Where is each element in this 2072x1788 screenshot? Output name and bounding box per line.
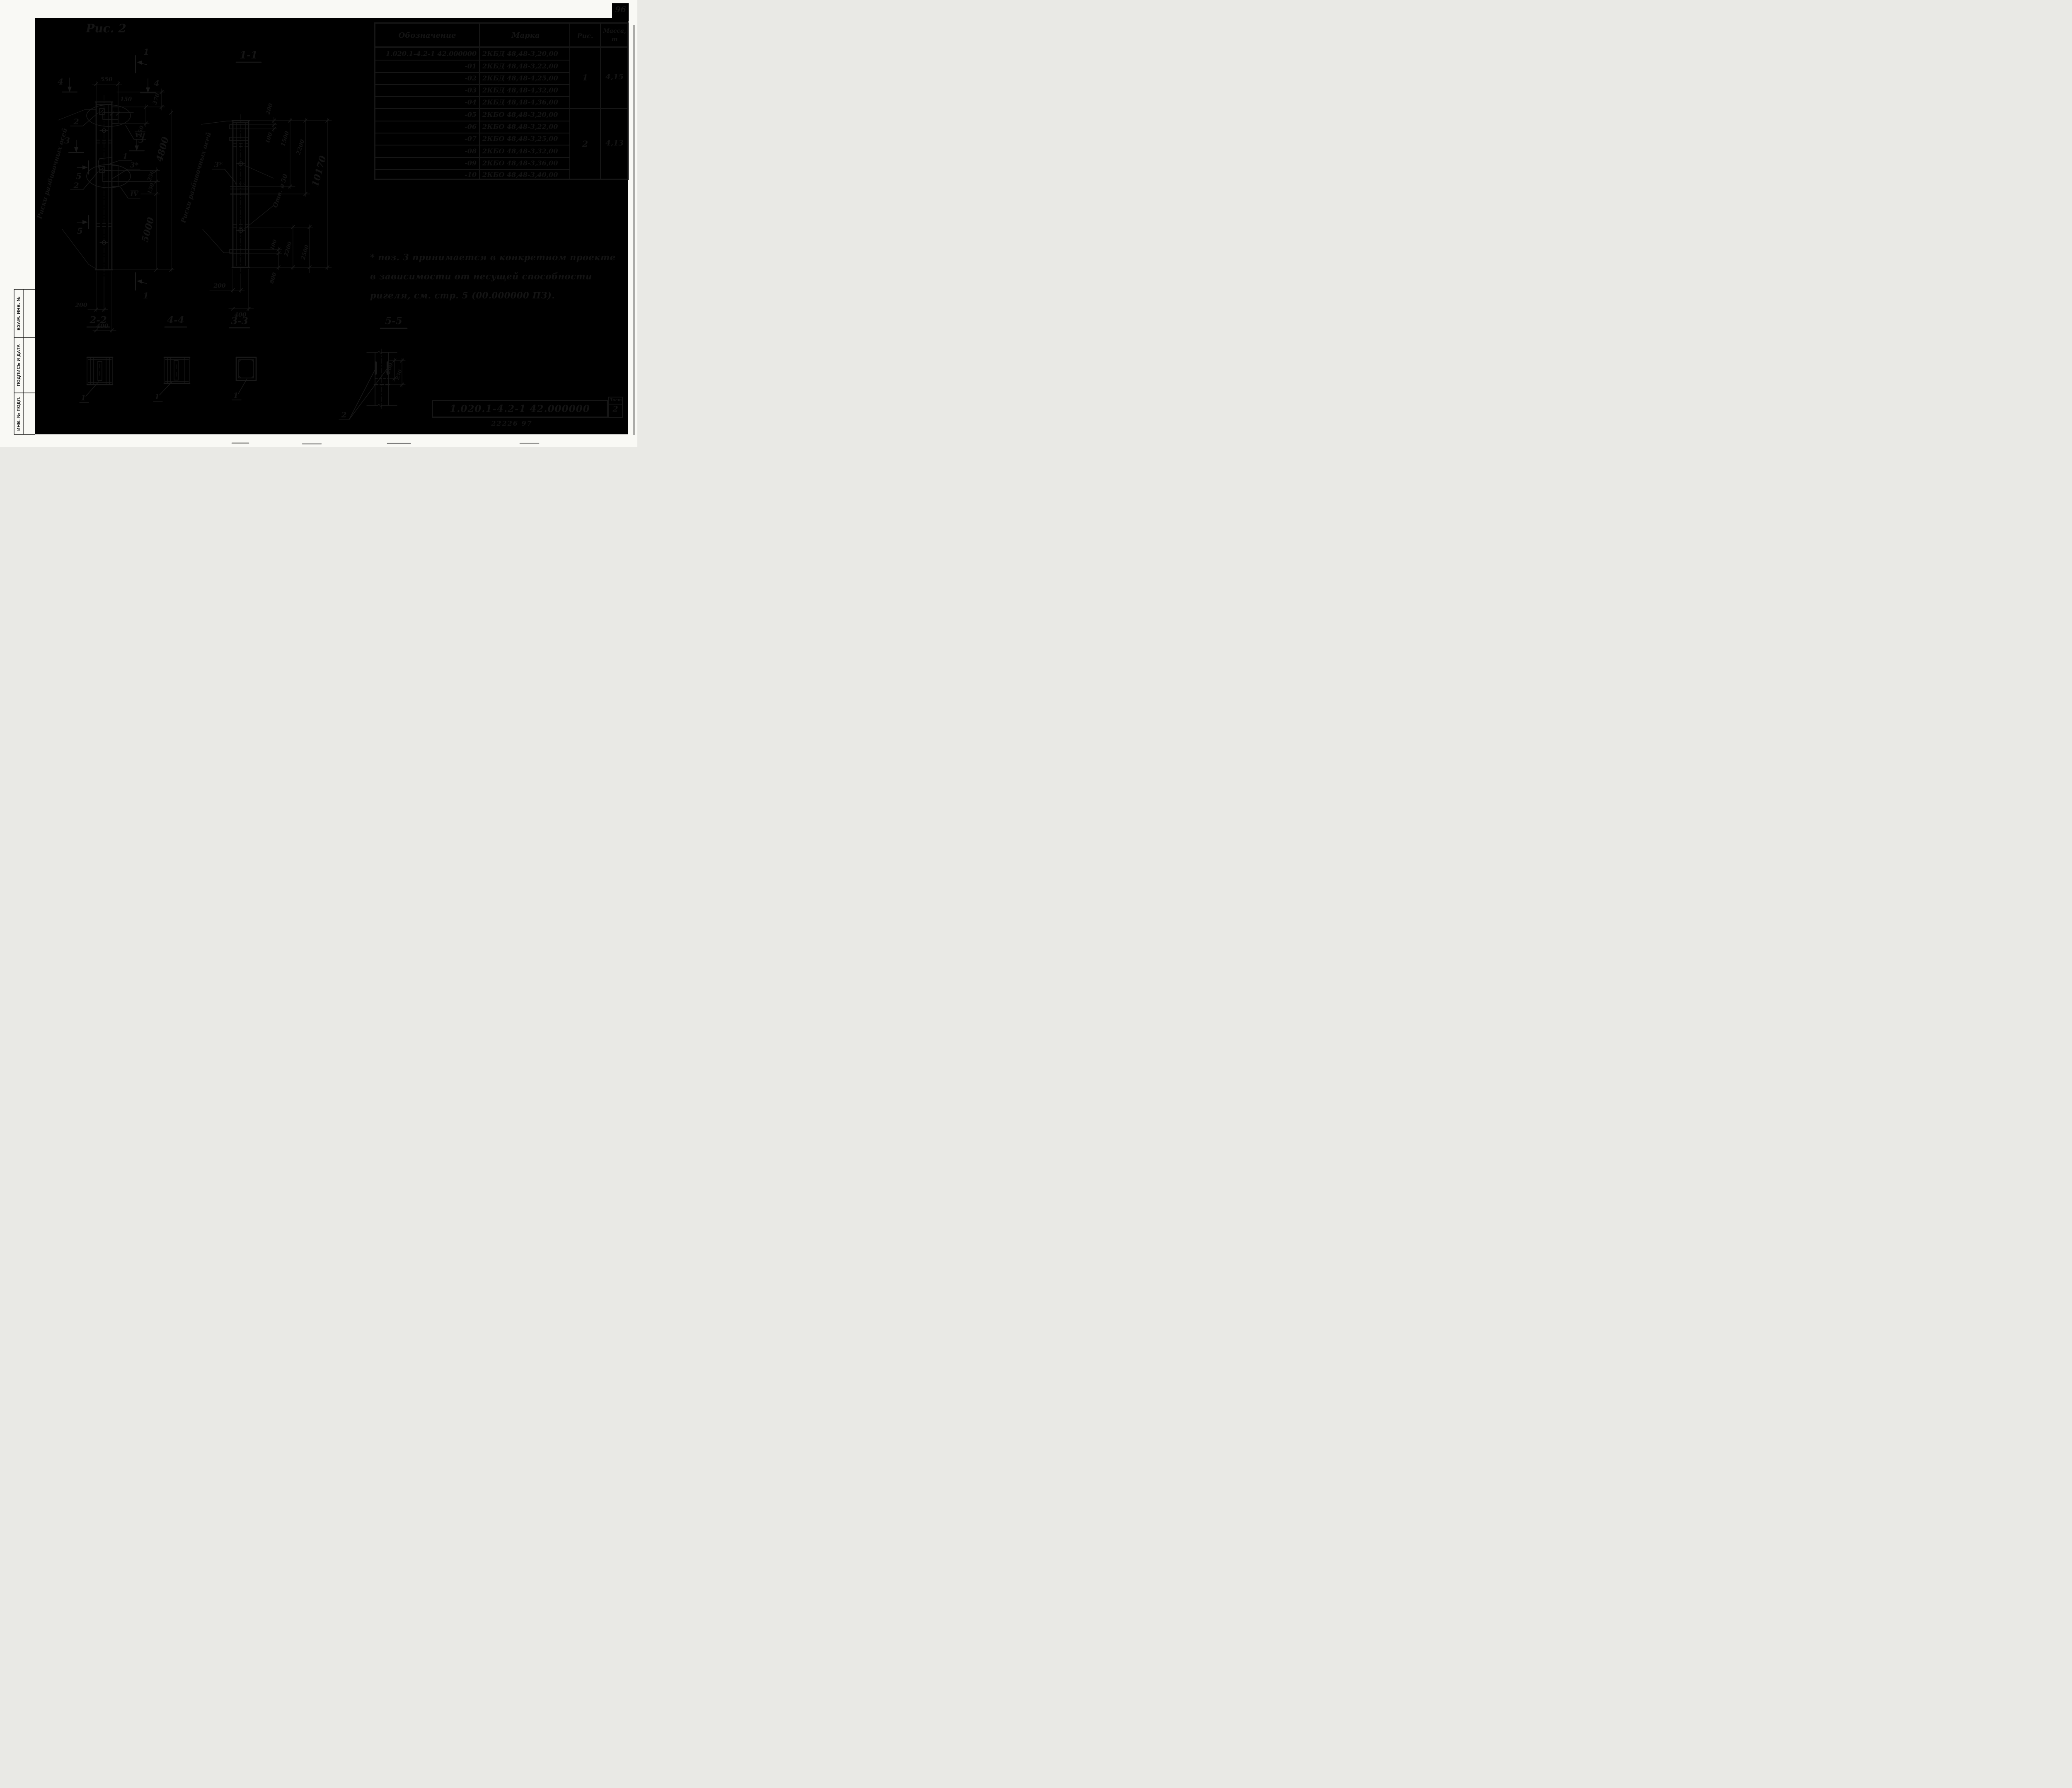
stamp-label-inv: ИНВ. № ПОДЛ. — [14, 385, 23, 443]
footnote-line-3: ригеля, см. стр. 5 (00.000000 ПЗ). — [370, 290, 629, 300]
table-row-line — [375, 121, 570, 121]
cell-designation: -07 — [375, 135, 477, 143]
table-row-line — [375, 133, 570, 133]
table-header-line — [375, 46, 627, 48]
section-5-5-title: 5-5 — [385, 315, 402, 327]
cell-designation: -10 — [375, 171, 477, 179]
footnote-line-1: * поз. 3 принимается в конкретном проект… — [370, 252, 629, 262]
cell-designation: -08 — [375, 147, 477, 155]
cell-designation: -06 — [375, 123, 477, 131]
col-header-mass: Масса, — [600, 28, 629, 34]
cell-designation: -02 — [375, 74, 477, 82]
drawing-stroke: 3* — [214, 161, 223, 169]
drawing-stroke: 1 — [122, 152, 128, 161]
col-header-mass-unit: т — [600, 36, 629, 43]
drawing-stroke: 4 — [58, 77, 63, 87]
cell-mark: 2КБО 48,48-3,32,00 — [482, 147, 569, 155]
drawing-stroke: 4 — [154, 78, 160, 88]
drawing-stroke: 1 — [81, 394, 86, 402]
table-row-line — [375, 157, 570, 158]
drawing-stroke: 2 — [341, 411, 347, 419]
cell-designation: -03 — [375, 86, 477, 94]
title-block-designation: 1.020.1-4.2-1 42.000000 — [450, 403, 590, 414]
table-group-line — [375, 108, 627, 109]
drawing-stroke: IV — [130, 190, 139, 198]
cell-designation: 1.020.1-4.2-1 42.000000 — [375, 50, 477, 58]
cell-designation: -09 — [375, 159, 477, 167]
col-header-mark: Марка — [487, 31, 564, 40]
drawing-stroke: 2 — [73, 181, 79, 190]
stamp-code: 22226 97 — [477, 419, 547, 427]
figure-title: Рис. 2 — [85, 22, 126, 35]
cell-mark: 2КБД 48,48-3,20,00 — [482, 50, 569, 58]
drawing-stroke: 1 — [143, 47, 149, 57]
section-4-4-title: 4-4 — [167, 315, 184, 326]
drawing-stroke: 3* — [130, 161, 139, 170]
page-number: 96 — [612, 5, 629, 14]
drawing-stroke: 5 — [77, 226, 83, 236]
sheet-box: Лист 2 — [608, 397, 623, 418]
cell-mark: 2КБО 48,48-3,36,00 — [482, 159, 569, 167]
group-mass-2: 4,13 — [600, 139, 629, 148]
cell-mark: 2КБД 48,48-4,25,00 — [482, 74, 569, 82]
table-row-line — [375, 145, 570, 145]
drawing-stroke: 1 — [155, 392, 160, 401]
drawing-stroke: 1 — [233, 391, 239, 400]
col-header-fig: Рис. — [570, 32, 600, 40]
table-row-line — [375, 60, 570, 61]
drawing-stroke: 1 — [143, 291, 149, 300]
cell-mark: 2КБД 48,48-4,32,00 — [482, 86, 569, 94]
drawing-sheet: Рис. 2 — [0, 0, 637, 447]
footnote-line-2: в зависимости от несущей способности — [370, 271, 629, 281]
cell-mark: 2КБО 48,48-3,22,00 — [482, 123, 569, 131]
group-fig-2: 2 — [570, 139, 600, 149]
dim-200: 200 — [75, 302, 87, 309]
section-3-3-title: 3-3 — [231, 315, 248, 327]
cell-designation: -04 — [375, 98, 477, 106]
table-row-line — [375, 84, 570, 85]
drawing-stroke — [633, 25, 635, 435]
cell-designation: -01 — [375, 62, 477, 70]
group-fig-1: 1 — [570, 73, 600, 82]
cell-mark: 2КБО 48,48-3,20,00 — [482, 111, 569, 119]
cell-mark: 2КБО 48,48-3,40,00 — [482, 171, 569, 179]
dim-150-offset: 150 — [120, 96, 132, 103]
group-mass-1: 4,15 — [600, 73, 629, 81]
drawing-stroke: 5 — [76, 171, 82, 181]
title-block: 1.020.1-4.2-1 42.000000 — [432, 400, 608, 418]
spec-table: Обозначение Марка Рис. Масса, т 1.020.1-… — [374, 22, 629, 180]
stamp-label-vzam: ВЗАМ. ИНВ. № — [14, 284, 23, 342]
drawing-stroke: 2 — [73, 117, 79, 126]
dim-550: 550 — [100, 76, 112, 83]
table-row-line — [375, 96, 570, 97]
cell-mark: 2КБД 48,48-3,22,00 — [482, 62, 569, 70]
sheet-label: Лист — [609, 397, 622, 405]
dim-200-bot: 200 — [213, 283, 225, 289]
cell-designation: -05 — [375, 111, 477, 119]
drawing-stroke: VII — [135, 131, 146, 139]
sheet-number: 2 — [609, 405, 622, 414]
section-1-1-title: 1-1 — [240, 49, 257, 61]
cell-mark: 2КБО 48,48-3,25,00 — [482, 135, 569, 143]
table-row-line — [375, 169, 570, 170]
cell-mark: 2КБД 48,48-4,36,00 — [482, 98, 569, 106]
table-row-line — [375, 72, 570, 73]
section-2-2-title: 2-2 — [89, 315, 107, 326]
col-header-designation: Обозначение — [388, 31, 467, 40]
